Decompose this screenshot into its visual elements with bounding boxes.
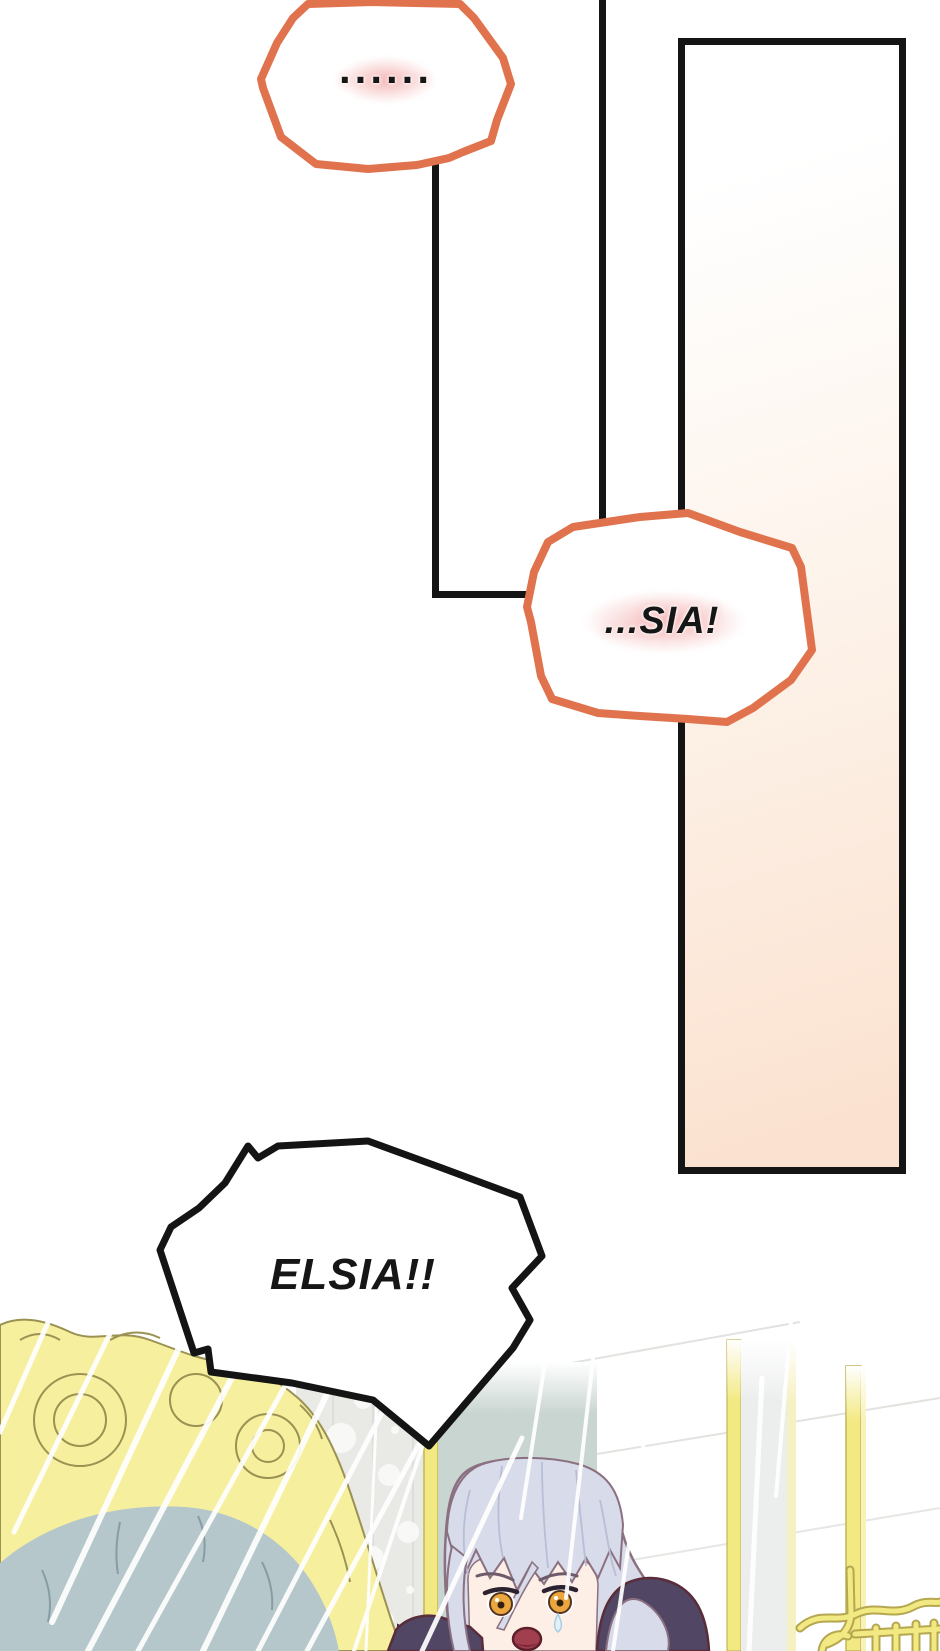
mouth: [513, 1628, 541, 1650]
bubble-elsia-text: ELSIA!!: [243, 1250, 463, 1300]
comic-page: ...SIA! ...... ELSIA!!: [0, 0, 940, 1651]
gold-scrollwork: [800, 1570, 940, 1651]
bubble-sia-text: ...SIA!: [572, 600, 752, 643]
bubble-silence-text: ......: [330, 46, 442, 92]
